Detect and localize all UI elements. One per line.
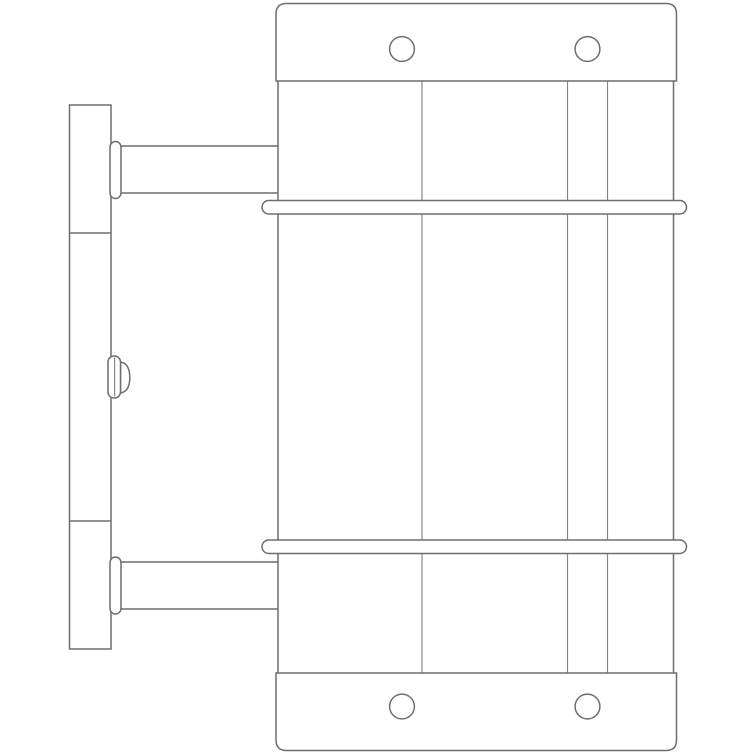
top-cap-outline <box>276 4 677 82</box>
upper-retaining-band <box>262 201 687 215</box>
upper-arm-flange <box>110 142 121 199</box>
top-end-cap <box>276 4 677 82</box>
bottom-cap-outline <box>276 673 677 751</box>
lower-retaining-band <box>262 540 687 554</box>
screw-dome <box>121 362 130 393</box>
cylinder-body <box>278 81 674 673</box>
lower-mounting-arm <box>110 557 278 614</box>
bottom-end-cap <box>276 673 677 751</box>
lower-arm-flange <box>110 557 121 614</box>
technical-drawing <box>0 0 755 755</box>
drawing-canvas <box>0 0 755 755</box>
wall-plate-outline <box>70 105 112 649</box>
wall-mount-plate <box>70 105 112 649</box>
set-screw-knob <box>108 356 130 398</box>
upper-mounting-arm <box>110 142 278 199</box>
